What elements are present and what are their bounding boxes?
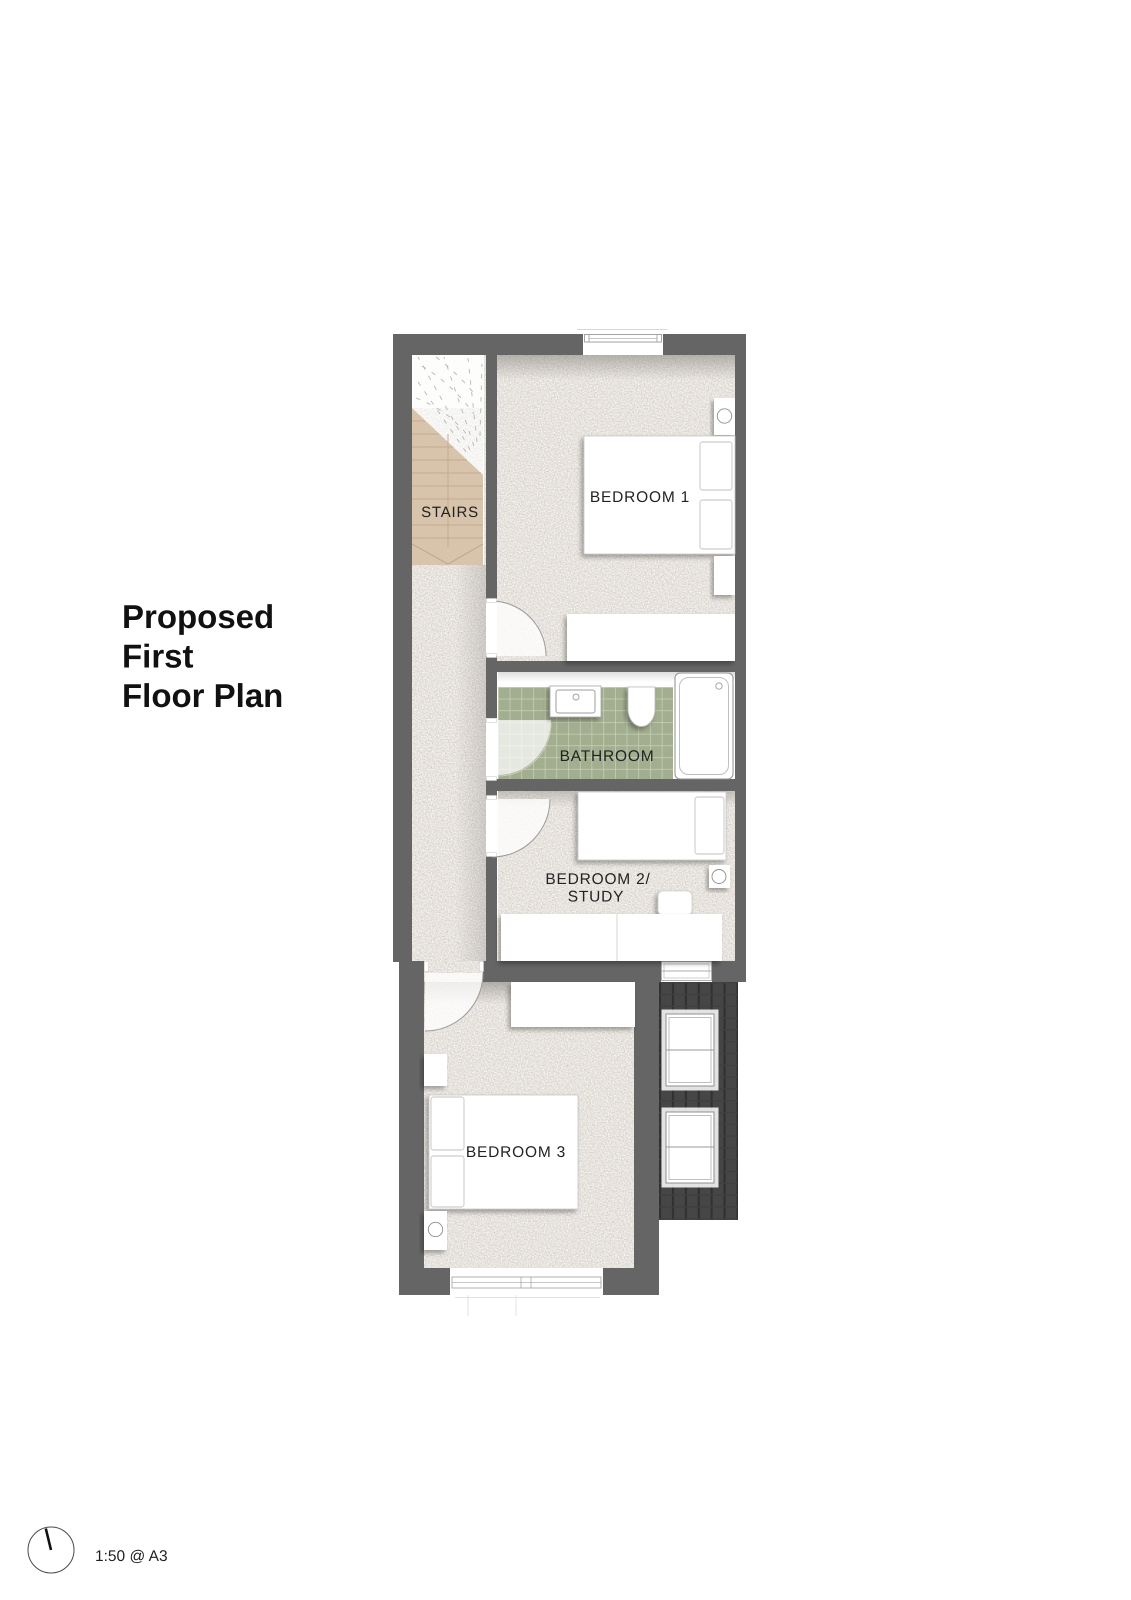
svg-text:Floor Plan: Floor Plan [122, 677, 283, 714]
svg-text:Proposed: Proposed [122, 598, 274, 635]
svg-text:STAIRS: STAIRS [421, 504, 479, 521]
svg-text:STUDY: STUDY [568, 889, 625, 906]
svg-text:BEDROOM 2/: BEDROOM 2/ [545, 871, 650, 888]
svg-text:First: First [122, 638, 194, 675]
svg-text:BEDROOM 3: BEDROOM 3 [466, 1144, 566, 1161]
svg-text:BATHROOM: BATHROOM [560, 748, 655, 765]
svg-text:1:50 @ A3: 1:50 @ A3 [95, 1548, 168, 1565]
svg-text:BEDROOM 1: BEDROOM 1 [590, 489, 690, 506]
